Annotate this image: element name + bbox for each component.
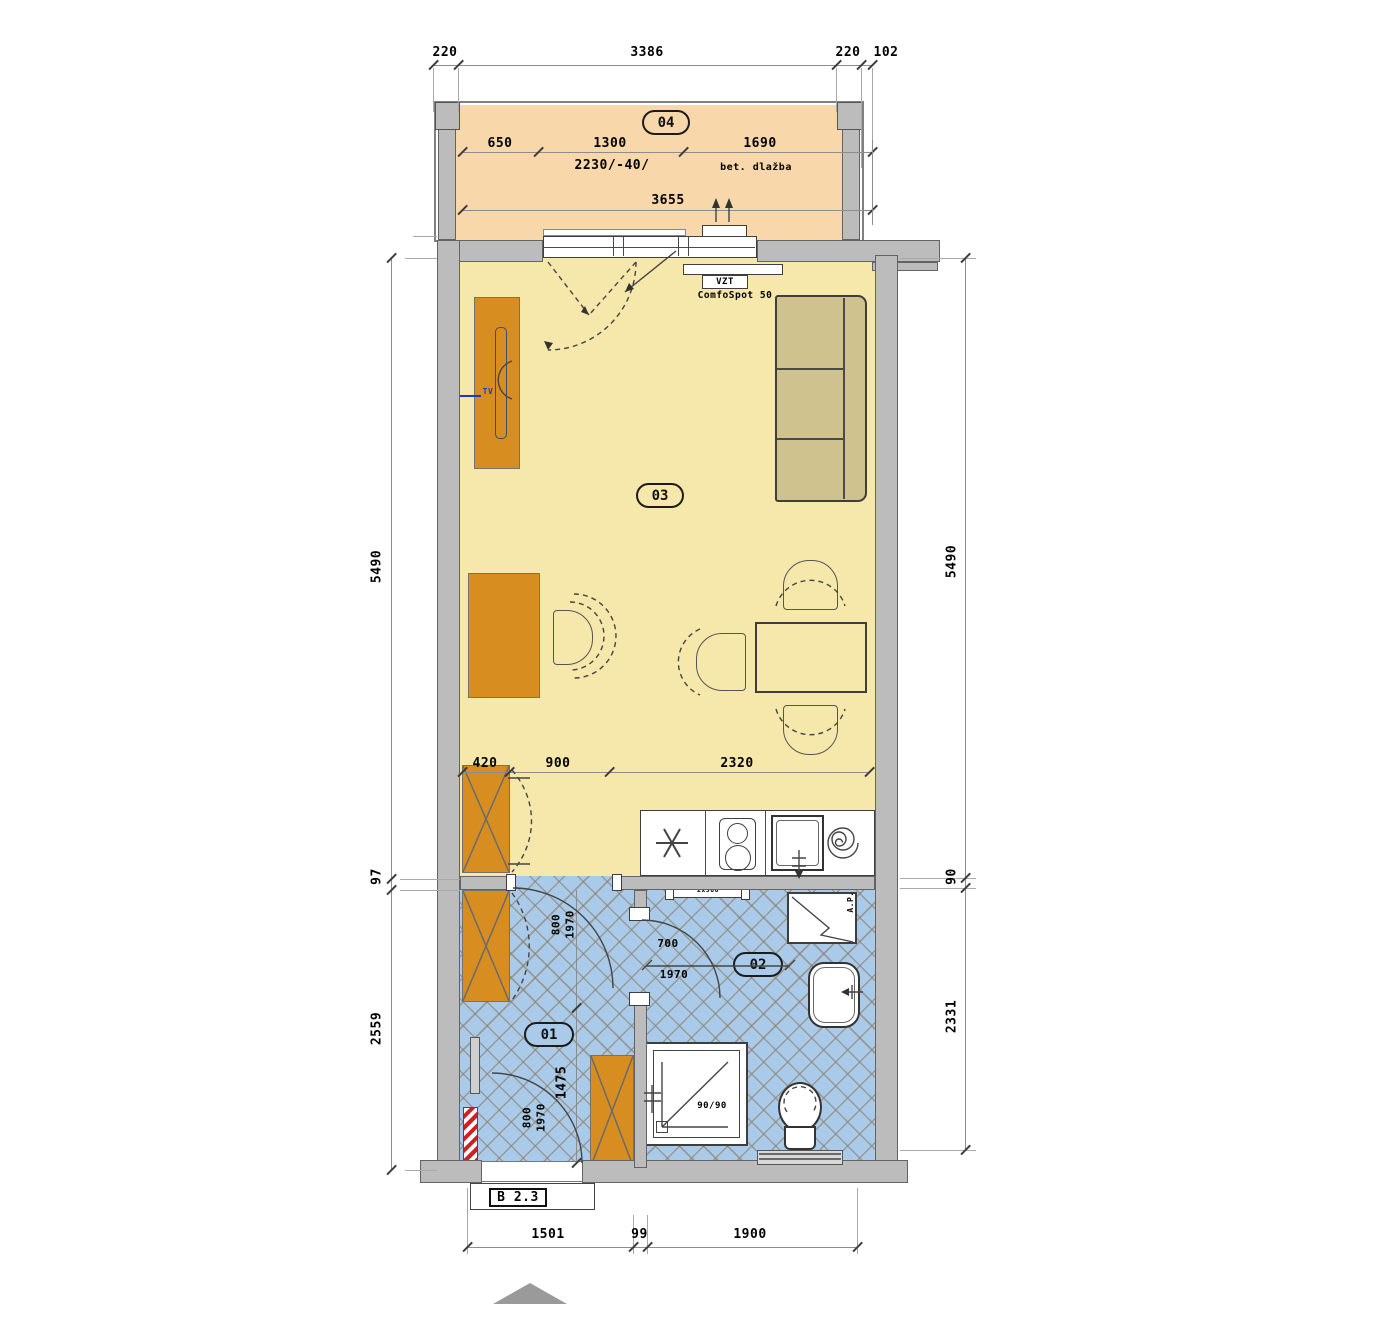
dim-line-right bbox=[965, 258, 966, 1150]
room-label-bath: 02 bbox=[733, 952, 783, 977]
sofa-seat-line-2 bbox=[777, 438, 843, 440]
balcony-material: bet. dlažba bbox=[714, 163, 798, 173]
shower-size-label: 90/90 bbox=[686, 1102, 738, 1111]
balcony-window-frame bbox=[543, 236, 757, 258]
vzt-label-box: VZT bbox=[702, 275, 748, 289]
room-label-living: 03 bbox=[636, 483, 684, 508]
dim-living-2320: 2320 bbox=[712, 757, 762, 770]
wardrobe-bath bbox=[590, 1055, 634, 1167]
floor-plan-canvas: VZT ComfoSpot 50 TV A.P. 90/90 2x900 bbox=[0, 0, 1380, 1320]
entry-door-width: 800 bbox=[522, 1096, 533, 1140]
tv-cable-line bbox=[460, 395, 481, 397]
dim-right-90: 90 bbox=[946, 862, 959, 892]
dim-line-bottom bbox=[467, 1247, 857, 1248]
wall-hall-bath-bottom bbox=[634, 1005, 647, 1168]
wardrobe-hall bbox=[462, 890, 510, 1002]
entry-door-height: 1970 bbox=[536, 1091, 547, 1145]
sofa-seat-line-1 bbox=[777, 368, 843, 370]
vzt-model: ComfoSpot 50 bbox=[683, 291, 787, 301]
dim-line-left bbox=[391, 258, 392, 1170]
hall-door-height: 1970 bbox=[565, 898, 576, 952]
tv bbox=[495, 327, 507, 439]
unit-code-box: B 2.3 bbox=[489, 1188, 547, 1207]
wardrobe-x-icon bbox=[463, 766, 509, 872]
bath-door-width: 700 bbox=[648, 938, 688, 949]
dining-table bbox=[755, 622, 867, 693]
dim-line-balcony-1 bbox=[462, 152, 872, 153]
wall-bottom-right bbox=[582, 1160, 908, 1183]
hall-door-post-left bbox=[506, 874, 516, 891]
tv-label: TV bbox=[479, 388, 497, 396]
wall-bottom-left bbox=[420, 1160, 482, 1183]
dim-line-top bbox=[433, 65, 872, 66]
unit-code: B 2.3 bbox=[497, 1191, 539, 1204]
ext-line bbox=[413, 236, 437, 237]
dim-balcony-1690: 1690 bbox=[735, 137, 785, 150]
dim-bottom-99: 99 bbox=[627, 1228, 652, 1241]
dim-top-3386: 3386 bbox=[617, 46, 677, 59]
vzt-unit bbox=[683, 264, 783, 275]
dim-top-220r: 220 bbox=[828, 46, 868, 59]
ext-line bbox=[405, 1170, 437, 1171]
ext-line bbox=[400, 890, 460, 891]
sofa-back-line bbox=[843, 298, 845, 499]
dining-chair-top bbox=[783, 560, 838, 610]
dim-right-5490: 5490 bbox=[946, 532, 959, 592]
wall-divider-right bbox=[615, 876, 875, 890]
bath-door-height: 1970 bbox=[652, 969, 696, 980]
dining-chair-bottom bbox=[783, 705, 838, 755]
shower-drain bbox=[656, 1121, 668, 1133]
room-label-balcony: 04 bbox=[642, 110, 690, 135]
hall-mirror bbox=[470, 1037, 480, 1094]
dim-line-balcony-right bbox=[872, 140, 873, 225]
wall-right bbox=[875, 255, 898, 1168]
room-id-living: 03 bbox=[652, 488, 669, 504]
dim-balcony-650: 650 bbox=[480, 137, 520, 150]
ext-line bbox=[458, 68, 459, 112]
cooktop-burner-1 bbox=[727, 823, 748, 844]
hall-door-post-right bbox=[612, 874, 622, 891]
ext-line bbox=[405, 258, 437, 259]
toilet-bowl bbox=[778, 1082, 822, 1132]
dim-right-2331: 2331 bbox=[946, 987, 959, 1047]
dim-bottom-1900: 1900 bbox=[725, 1228, 775, 1241]
dim-left-5490: 5490 bbox=[371, 537, 384, 597]
washer-label: A.P. bbox=[847, 891, 855, 913]
wardrobe-x-icon bbox=[591, 1056, 633, 1166]
kitchen-counter bbox=[640, 810, 875, 876]
sofa bbox=[775, 295, 867, 502]
dim-top-220l: 220 bbox=[425, 46, 465, 59]
dim-bottom-1501: 1501 bbox=[523, 1228, 573, 1241]
wardrobe-x-icon bbox=[463, 891, 509, 1001]
dim-living-900: 900 bbox=[538, 757, 578, 770]
room-id-balcony: 04 bbox=[658, 115, 675, 131]
room-id-hall: 01 bbox=[541, 1027, 558, 1043]
electrical-panel-marker bbox=[463, 1107, 478, 1162]
wardrobe-living bbox=[462, 765, 510, 873]
kitchen-divider-2 bbox=[765, 811, 766, 875]
dim-top-102: 102 bbox=[866, 46, 906, 59]
cooktop-burner-2 bbox=[725, 845, 751, 871]
room-id-bath: 02 bbox=[750, 957, 767, 973]
dim-left-2559: 2559 bbox=[371, 999, 384, 1059]
kitchen-sink-basin bbox=[776, 820, 819, 866]
hall-door-width: 800 bbox=[551, 903, 562, 947]
dim-line-living bbox=[462, 772, 869, 773]
ext-line bbox=[400, 879, 460, 880]
dim-hall-1475: 1475 bbox=[556, 1053, 569, 1113]
balcony-column-right bbox=[837, 102, 862, 130]
toilet-tank bbox=[784, 1126, 816, 1150]
balcony-column-left bbox=[435, 102, 460, 130]
ext-line bbox=[861, 68, 862, 168]
dim-left-97: 97 bbox=[371, 862, 384, 892]
wall-left bbox=[437, 240, 460, 1168]
vzt-name: VZT bbox=[716, 278, 734, 287]
balcony-window-sill bbox=[543, 229, 686, 236]
room-label-hall: 01 bbox=[524, 1022, 574, 1047]
dim-balcony-note: 2230/-40/ bbox=[562, 159, 662, 172]
dim-living-420: 420 bbox=[465, 757, 505, 770]
dim-balcony-3655: 3655 bbox=[643, 194, 693, 207]
entry-door-opening bbox=[482, 1161, 582, 1182]
dim-balcony-1300: 1300 bbox=[585, 137, 635, 150]
washbasin-inner bbox=[813, 967, 855, 1023]
entrance-arrow bbox=[493, 1283, 567, 1304]
desk bbox=[468, 573, 540, 698]
ext-line bbox=[836, 68, 837, 112]
dim-line-balcony-2 bbox=[462, 210, 872, 211]
bath-door-post-top bbox=[629, 907, 650, 921]
dining-chair-left bbox=[696, 633, 746, 691]
toilet-base bbox=[757, 1150, 843, 1165]
kitchen-divider-1 bbox=[705, 811, 706, 875]
ext-line bbox=[433, 68, 434, 112]
bath-door-post-bottom bbox=[629, 992, 650, 1006]
